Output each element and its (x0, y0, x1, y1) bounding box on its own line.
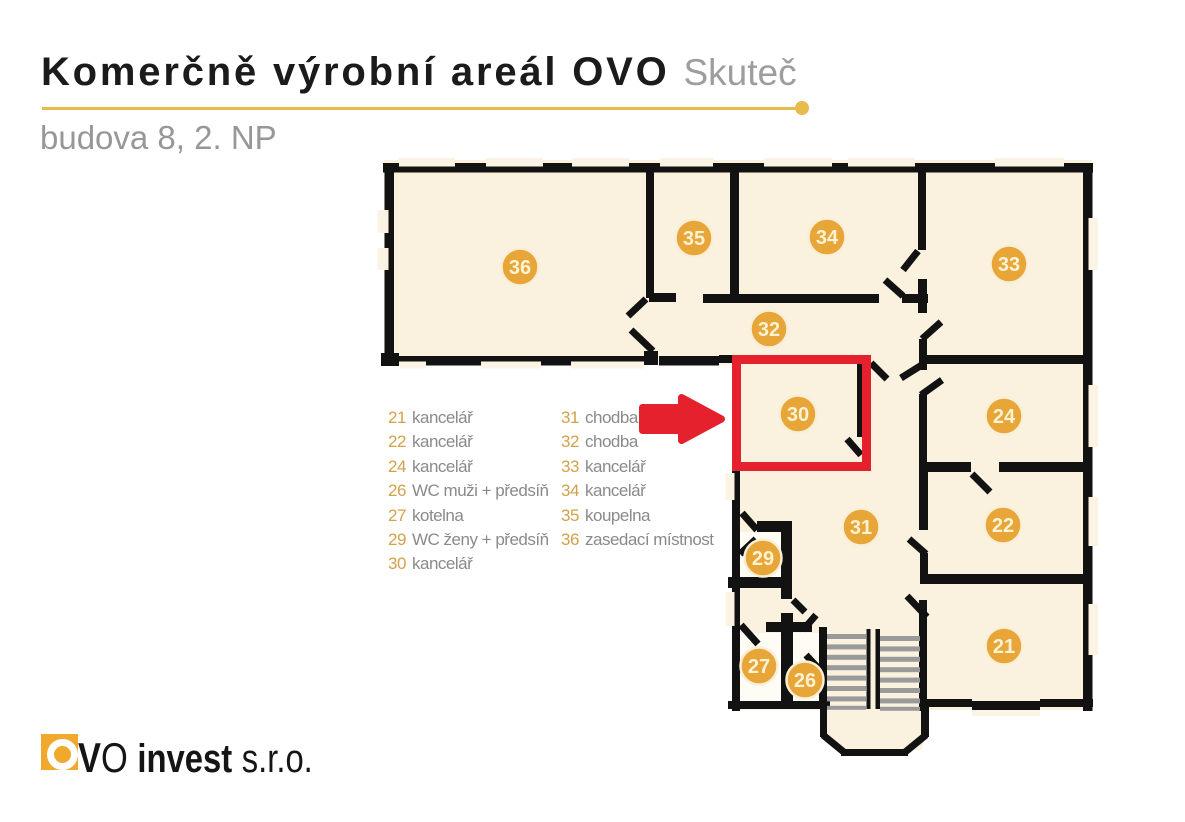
svg-text:29: 29 (752, 548, 774, 570)
svg-text:27: 27 (748, 656, 770, 678)
svg-text:36: 36 (509, 257, 531, 279)
svg-text:32: 32 (758, 319, 780, 341)
svg-text:31: 31 (850, 517, 872, 539)
svg-text:33: 33 (998, 254, 1020, 276)
svg-text:21: 21 (993, 636, 1015, 658)
svg-text:34: 34 (816, 227, 839, 249)
svg-text:22: 22 (992, 515, 1014, 537)
svg-text:24: 24 (993, 406, 1016, 428)
svg-text:26: 26 (794, 670, 816, 692)
svg-text:35: 35 (683, 228, 705, 250)
svg-text:30: 30 (787, 404, 809, 426)
